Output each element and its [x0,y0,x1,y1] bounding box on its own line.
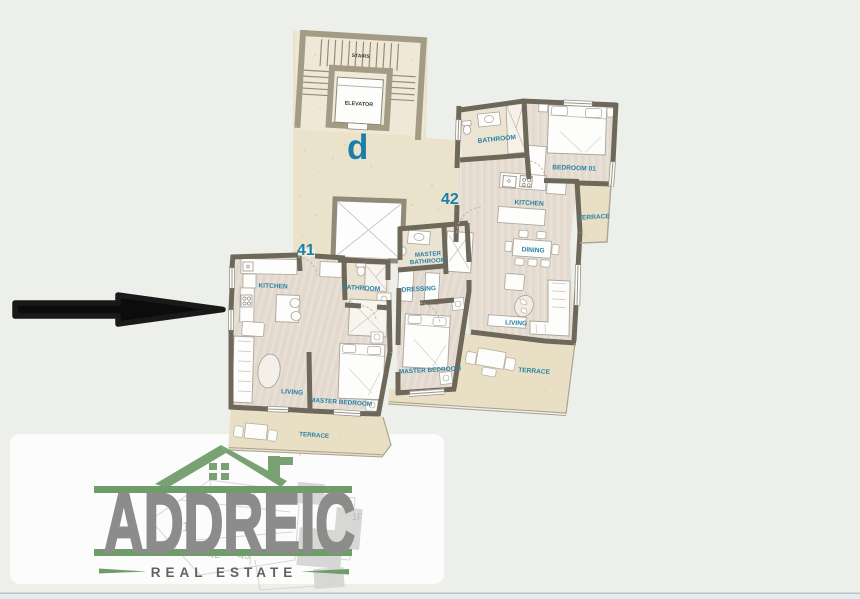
svg-text:ADDREIC: ADDREIC [104,476,355,571]
svg-text:REAL ESTATE: REAL ESTATE [151,565,298,580]
svg-text:42: 42 [441,191,459,208]
svg-text:41: 41 [297,242,315,259]
svg-text:LIVING: LIVING [505,319,527,327]
svg-text:DINING: DINING [521,246,544,254]
svg-text:KITCHEN: KITCHEN [258,282,288,290]
svg-text:STAIRS: STAIRS [352,53,371,60]
svg-text:d: d [347,128,368,167]
